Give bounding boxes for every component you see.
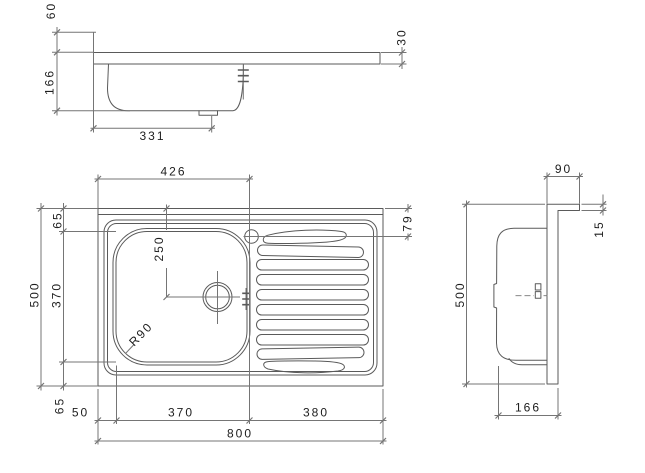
plan-bowl-radius-label: R90 xyxy=(126,319,156,349)
end-dim-edge-height-label: 15 xyxy=(592,220,606,237)
end-fascia-profile xyxy=(547,204,580,384)
side-view: 60 166 30 331 xyxy=(43,2,409,143)
plan-dim-tap-x-label: 426 xyxy=(160,165,186,179)
side-drain-outlet xyxy=(199,111,218,116)
plan-dim-depth-chain: 65 370 65 xyxy=(50,203,117,414)
end-overflow-icon-lower xyxy=(535,292,541,299)
plan-dim-overall-width-label: 800 xyxy=(227,427,253,441)
plan-dim-bowl-width-label: 370 xyxy=(168,406,194,420)
plan-dim-rim-top-label: 65 xyxy=(51,211,65,228)
dim-lines xyxy=(167,205,241,298)
side-bowl-outline xyxy=(108,64,244,111)
rib xyxy=(257,290,369,301)
dim-lines xyxy=(52,27,130,133)
end-dim-flange-width: 90 xyxy=(544,162,584,204)
side-dim-bowl-depth: 166 xyxy=(43,69,57,95)
rib xyxy=(257,305,369,316)
rib-slanted xyxy=(257,245,363,258)
end-bowl-inner-profile xyxy=(509,359,547,365)
rib xyxy=(257,275,369,286)
side-rim-outline xyxy=(94,53,381,65)
plan-dim-drain-y-label: 250 xyxy=(152,235,166,261)
plan-dim-rim-left-label: 50 xyxy=(72,406,89,420)
rib-slanted-lower xyxy=(257,347,364,359)
plan-dim-overall-width: 800 xyxy=(95,389,387,445)
side-dim-upstand-height: 60 xyxy=(44,2,58,19)
drainboard xyxy=(257,230,369,373)
end-view: 90 15 500 166 xyxy=(453,162,607,420)
rib xyxy=(257,260,369,271)
dim-lines xyxy=(544,173,584,204)
plan-radius-callout: R90 xyxy=(126,319,156,353)
end-dim-overall-depth-label: 500 xyxy=(453,281,467,307)
dim-lines xyxy=(381,47,407,69)
side-dim-rim-thickness: 30 xyxy=(381,28,409,69)
dim-lines xyxy=(95,366,387,425)
plan-dim-width-chain: 50 370 380 xyxy=(72,366,387,425)
end-dim-edge-height: 15 xyxy=(582,195,607,238)
plan-dim-overall-depth-label: 500 xyxy=(28,281,42,307)
plan-dim-rim-bottom-label: 65 xyxy=(53,397,67,414)
side-dim-drain-offset: 331 xyxy=(91,116,216,143)
plan-dim-tap-y-label: 79 xyxy=(401,214,415,231)
end-dim-bowl-width-label: 166 xyxy=(515,401,541,415)
rib xyxy=(257,320,369,331)
plan-dim-drainer-width-label: 380 xyxy=(303,406,329,420)
plan-dim-bowl-length-label: 370 xyxy=(50,282,64,308)
end-bowl-profile xyxy=(494,228,547,360)
rib xyxy=(257,335,369,346)
side-dim-rim-thickness-label: 30 xyxy=(395,28,409,45)
sink-technical-drawing: 60 166 30 331 xyxy=(0,0,645,473)
technical-drawing-page: 60 166 30 331 xyxy=(0,0,645,473)
plan-view: 426 79 250 500 65 370 65 xyxy=(28,165,415,445)
end-dim-flange-width-label: 90 xyxy=(555,162,572,176)
plan-outer-edge xyxy=(98,209,383,387)
side-dim-left: 60 166 xyxy=(43,2,131,133)
end-overflow-icon-upper xyxy=(535,284,541,290)
end-dim-bowl-width: 166 xyxy=(495,366,562,420)
side-dim-drain-offset-label: 331 xyxy=(139,129,165,143)
